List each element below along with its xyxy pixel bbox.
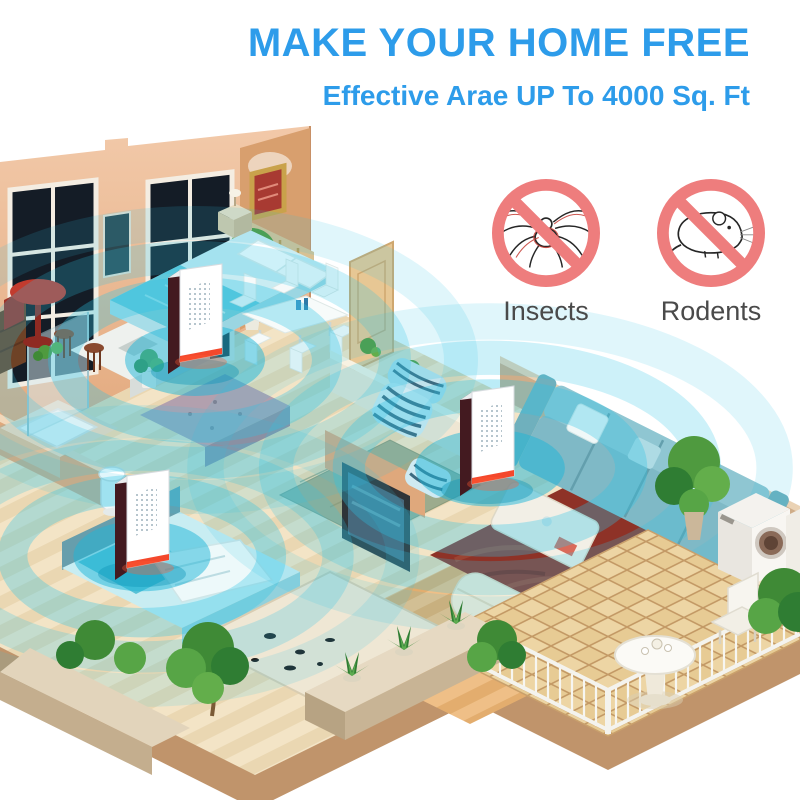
no-rodents-icon — [652, 174, 770, 292]
badge-label: Rodents — [646, 296, 776, 327]
headline: MAKE YOUR HOME FREE — [248, 22, 750, 64]
repeller-device-3 — [115, 470, 174, 580]
no-insects-icon — [487, 174, 605, 292]
no-rodents-badge: Rodents — [646, 174, 776, 327]
subheadline: Effective Arae UP To 4000 Sq. Ft — [248, 80, 750, 112]
product-banner: MAKE YOUR HOME FREE Effective Arae UP To… — [0, 0, 800, 800]
repeller-device-2 — [460, 386, 519, 496]
headline-block: MAKE YOUR HOME FREE Effective Arae UP To… — [248, 22, 750, 112]
house-illustration — [0, 0, 800, 800]
repeller-device-1 — [168, 264, 227, 374]
badge-label: Insects — [481, 296, 611, 327]
no-insects-badge: Insects — [481, 174, 611, 327]
